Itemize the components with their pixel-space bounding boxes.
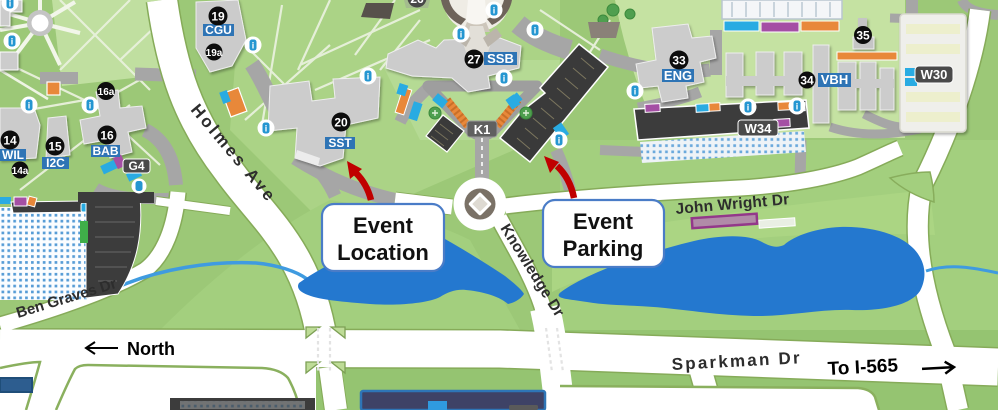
svg-text:W34: W34 xyxy=(745,121,773,136)
svg-text:K1: K1 xyxy=(474,122,491,137)
svg-text:33: 33 xyxy=(672,54,686,68)
svg-text:I2C: I2C xyxy=(46,156,65,170)
svg-text:Location: Location xyxy=(337,240,429,265)
svg-text:i: i xyxy=(367,72,370,82)
svg-text:SSB: SSB xyxy=(487,51,514,66)
svg-text:To I-565: To I-565 xyxy=(827,355,899,380)
svg-text:16a: 16a xyxy=(98,87,115,98)
svg-text:i: i xyxy=(634,87,637,97)
svg-text:34: 34 xyxy=(800,74,814,88)
svg-text:35: 35 xyxy=(856,29,870,43)
svg-text:Event: Event xyxy=(353,213,414,238)
svg-text:i: i xyxy=(534,26,537,36)
svg-text:27: 27 xyxy=(467,53,481,67)
svg-text:15: 15 xyxy=(48,140,62,154)
svg-text:26: 26 xyxy=(410,0,424,6)
svg-text:i: i xyxy=(558,136,561,146)
svg-text:19: 19 xyxy=(211,10,225,24)
svg-text:W30: W30 xyxy=(921,67,948,82)
svg-text:G4: G4 xyxy=(128,159,144,173)
svg-text:i: i xyxy=(11,37,14,47)
svg-text:Parking: Parking xyxy=(563,236,644,261)
svg-text:Event: Event xyxy=(573,209,634,234)
svg-text:20: 20 xyxy=(334,116,348,130)
svg-text:VBH: VBH xyxy=(821,72,848,87)
svg-text:SST: SST xyxy=(328,136,352,150)
svg-text:14: 14 xyxy=(3,134,17,148)
svg-text:i: i xyxy=(9,0,12,9)
svg-text:19a: 19a xyxy=(206,48,223,59)
svg-text:14a: 14a xyxy=(12,166,29,177)
svg-text:i: i xyxy=(796,102,799,112)
svg-text:i: i xyxy=(503,74,506,84)
svg-text:i: i xyxy=(460,30,463,40)
svg-text:ENG: ENG xyxy=(664,68,692,83)
svg-text:i: i xyxy=(89,101,92,111)
svg-text:i: i xyxy=(747,103,750,113)
svg-text:i: i xyxy=(265,124,268,134)
svg-text:BAB: BAB xyxy=(93,144,119,158)
svg-text:i: i xyxy=(493,6,496,16)
svg-text:North: North xyxy=(127,339,175,359)
svg-text:i: i xyxy=(252,41,255,51)
svg-text:WIL: WIL xyxy=(2,148,24,162)
svg-text:16: 16 xyxy=(100,129,114,143)
svg-text:i: i xyxy=(28,101,31,111)
